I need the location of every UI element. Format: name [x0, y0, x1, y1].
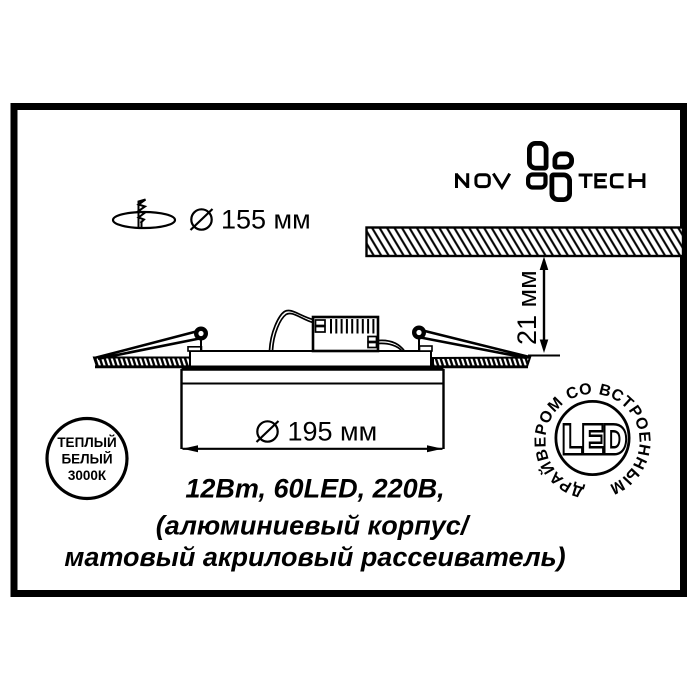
svg-text:(алюминиевый корпус/: (алюминиевый корпус/ — [156, 511, 471, 541]
svg-text:БЕЛЫЙ: БЕЛЫЙ — [61, 452, 112, 467]
svg-text:155 мм: 155 мм — [221, 205, 311, 235]
svg-text:ТЕПЛЫЙ: ТЕПЛЫЙ — [57, 435, 116, 450]
svg-text:21 мм: 21 мм — [512, 270, 542, 345]
svg-text:матовый акриловый рассеиватель: матовый акриловый рассеиватель) — [64, 542, 565, 572]
svg-text:195 мм: 195 мм — [288, 417, 378, 447]
svg-text:12Вт, 60LED, 220В,: 12Вт, 60LED, 220В, — [185, 474, 444, 504]
svg-text:3000К: 3000К — [68, 468, 107, 483]
svg-text:LED: LED — [563, 417, 627, 462]
